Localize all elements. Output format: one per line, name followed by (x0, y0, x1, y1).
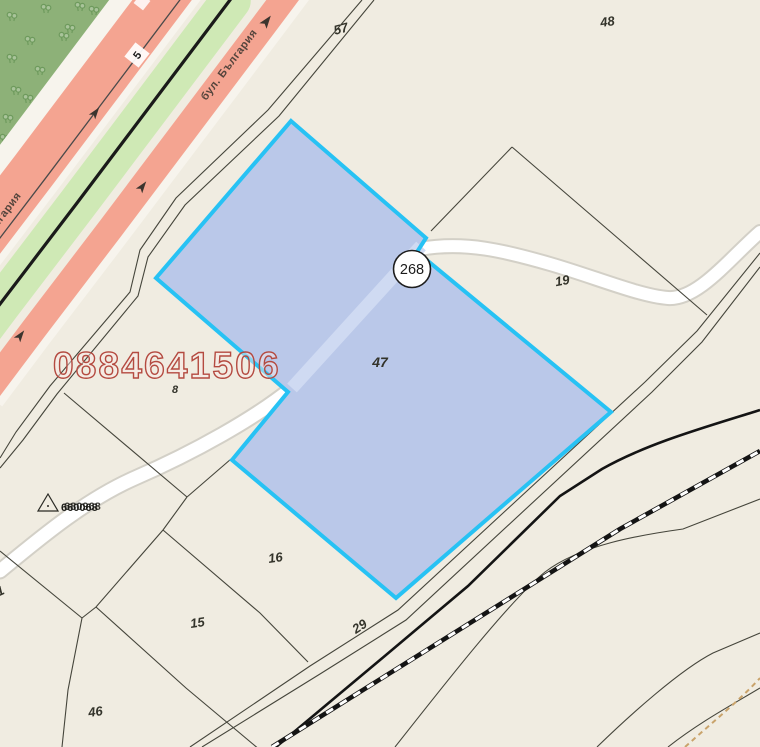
svg-text:268: 268 (400, 262, 424, 278)
map-canvas[interactable]: бул. България бул. България (0, 0, 760, 747)
parcel-label-48: 48 (598, 13, 616, 30)
parcel-label-46: 46 (86, 703, 104, 720)
parcel-label-16: 16 (267, 549, 284, 566)
parcel-label-47: 47 (371, 354, 389, 370)
parcel-label-15: 15 (189, 614, 206, 631)
geodetic-number-b: 680968 (64, 501, 101, 513)
route-badge-268: 268 (394, 251, 431, 288)
phone-watermark: 0884641506 (53, 345, 281, 386)
